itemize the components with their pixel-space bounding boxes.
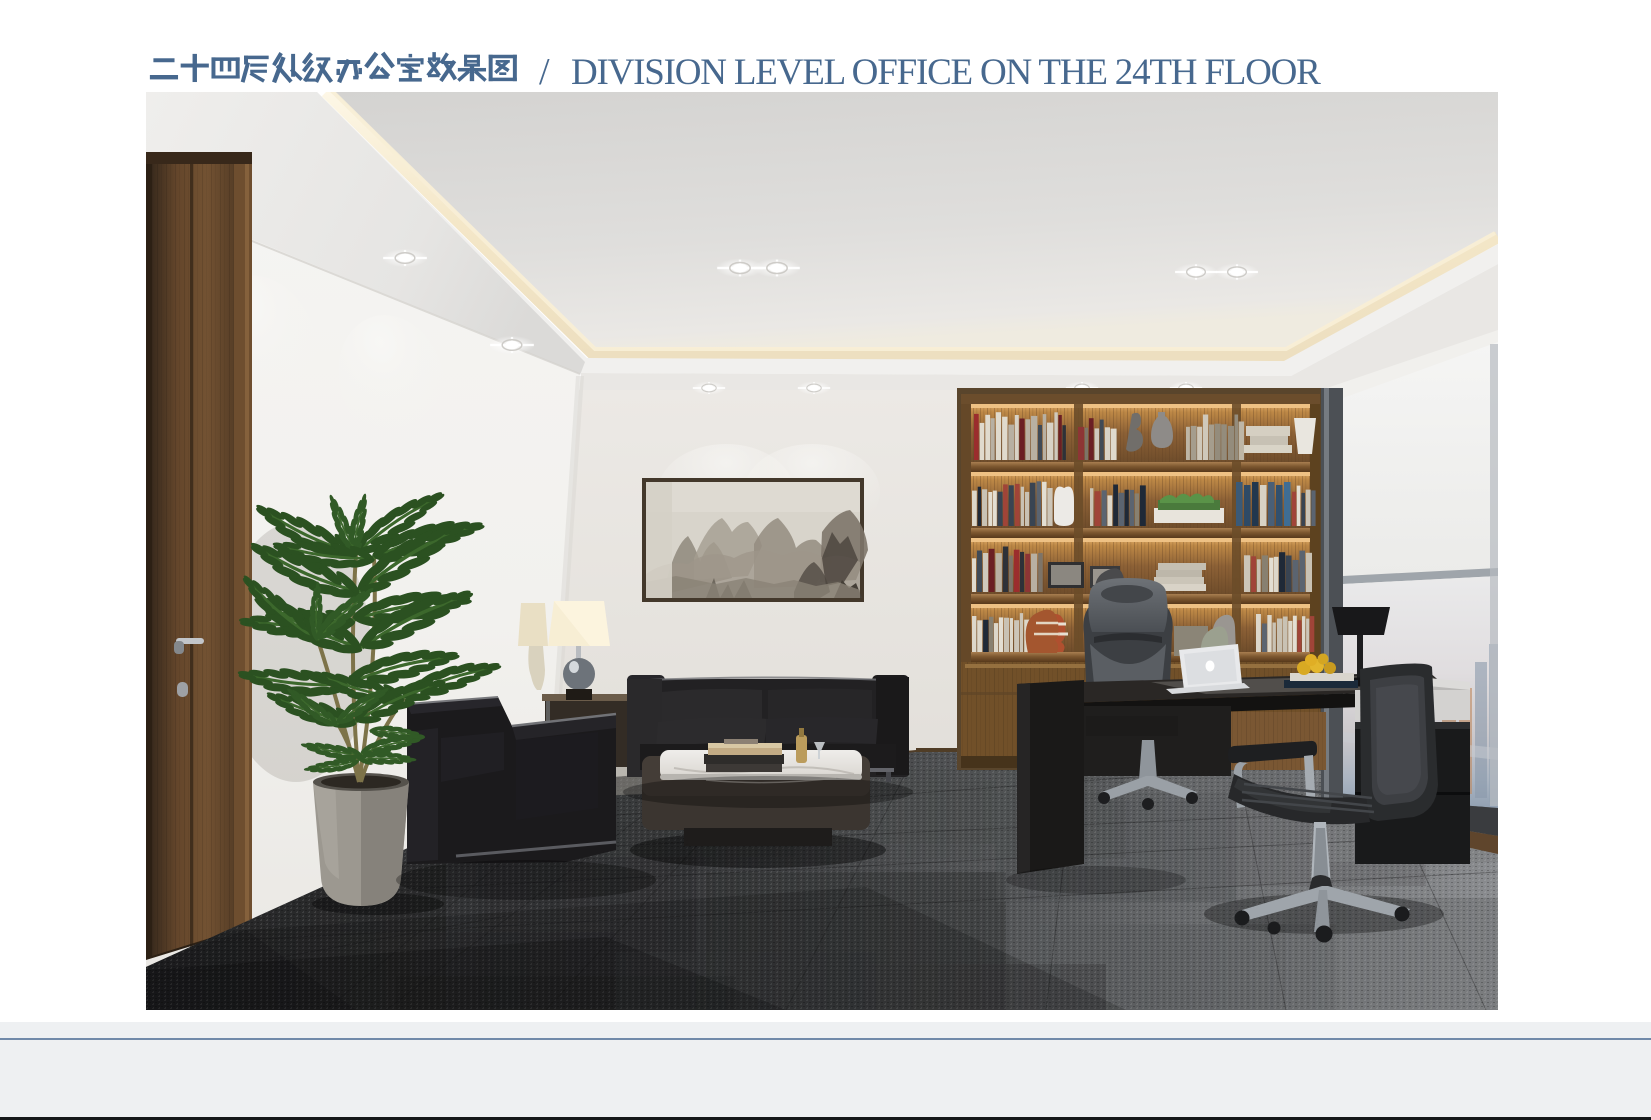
svg-text:/: / — [539, 51, 550, 93]
svg-text:DIVISION LEVEL OFFICE ON THE 2: DIVISION LEVEL OFFICE ON THE 24TH FLOOR — [571, 52, 1321, 93]
